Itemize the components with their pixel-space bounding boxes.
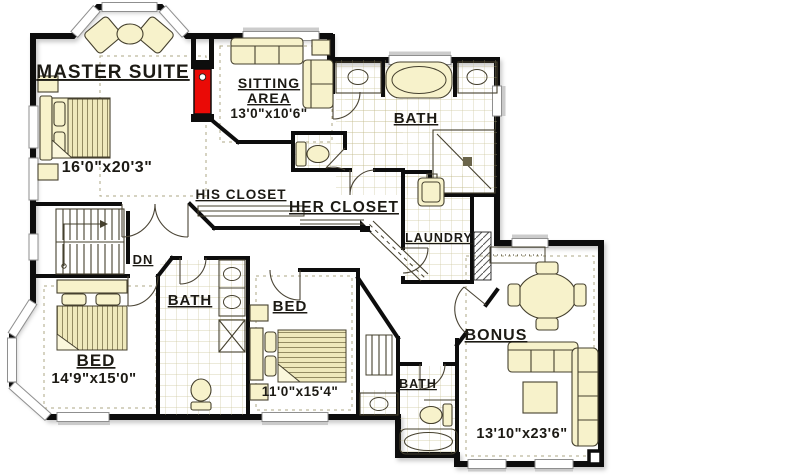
label-sitting-2: AREA xyxy=(247,90,291,106)
window xyxy=(468,460,506,469)
window xyxy=(8,338,17,382)
fireplace xyxy=(191,36,214,122)
label-master-bath: BATH xyxy=(394,110,439,127)
dims-bed-middle: 11'0"x15'4" xyxy=(262,384,339,399)
bay-sitting-chairs xyxy=(83,15,175,54)
bed-left-furniture xyxy=(57,280,127,350)
label-bed-left: BED xyxy=(77,351,116,370)
shower-drain xyxy=(463,157,472,166)
label-lower-bath: BATH xyxy=(399,377,437,391)
window xyxy=(29,158,38,200)
side-table xyxy=(312,40,330,55)
wall-post xyxy=(589,451,601,464)
label-laundry: LAUNDRY xyxy=(405,231,473,245)
label-dn: DN xyxy=(133,252,154,267)
sofa xyxy=(231,38,303,64)
bathtub xyxy=(386,62,452,98)
window xyxy=(102,3,157,12)
dims-master-suite: 16'0"x20'3" xyxy=(62,159,153,176)
window xyxy=(8,300,37,338)
stairs xyxy=(56,209,124,274)
window xyxy=(262,413,328,422)
sofa xyxy=(508,342,578,372)
dims-sitting: 13'0"x10'6" xyxy=(230,106,307,121)
label-bonus: BONUS xyxy=(465,327,528,344)
toilet xyxy=(443,404,452,426)
floor-plan-drawing: MASTER SUITE 16'0"x20'3" SITTING AREA 13… xyxy=(0,0,800,476)
stair-arrow xyxy=(100,220,108,228)
label-her-closet: HER CLOSET xyxy=(289,199,399,216)
coffee-table xyxy=(523,382,557,413)
label-master-suite: MASTER SUITE xyxy=(36,62,189,83)
floor-plan-page: MASTER SUITE 16'0"x20'3" SITTING AREA 13… xyxy=(0,0,800,476)
dims-bed-left: 14'9"x15'0" xyxy=(51,370,136,387)
dining-table xyxy=(518,273,576,319)
window xyxy=(535,460,573,469)
window xyxy=(29,106,38,148)
round-table xyxy=(117,24,143,44)
window xyxy=(512,239,548,248)
bonus-furniture xyxy=(490,247,598,446)
label-sitting-1: SITTING xyxy=(238,75,300,91)
label-hall-bath: BATH xyxy=(168,292,213,309)
window xyxy=(9,382,51,421)
window xyxy=(29,234,38,260)
window xyxy=(57,413,109,422)
dims-bonus: 13'10"x23'6" xyxy=(476,426,567,442)
chase xyxy=(474,232,491,280)
sectional xyxy=(572,348,598,446)
toilet xyxy=(191,379,211,401)
label-his-closet: HIS CLOSET xyxy=(195,187,286,202)
toilet xyxy=(296,142,306,166)
label-bed-middle: BED xyxy=(273,298,308,315)
